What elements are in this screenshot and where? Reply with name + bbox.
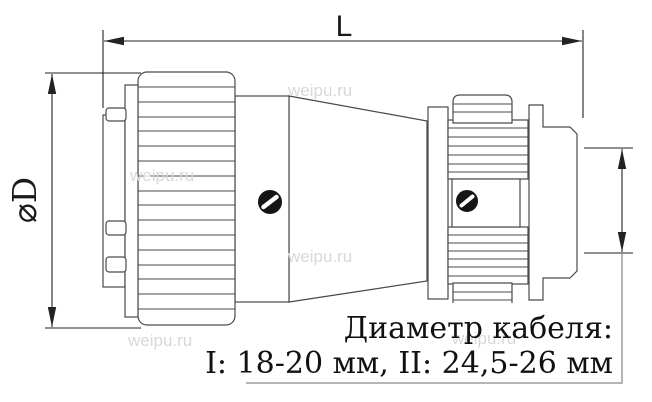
gland-flange-ring (428, 107, 448, 299)
note-line-1: Диаметр кабеля: (344, 311, 613, 346)
gland-nut-lower-ribs (448, 227, 528, 284)
watermark-text: weipu.ru (287, 81, 352, 100)
cable-exit-cap (529, 105, 577, 300)
technical-drawing-page: L ⌀D weipu.ru weipu.ru weipu.ru weipu.ru… (0, 0, 652, 402)
key-tab-lower (106, 257, 126, 272)
length-dimension-label: L (336, 10, 353, 43)
note-line-2: I: 18-20 мм, II: 24,5-26 мм (205, 346, 613, 381)
watermark-text: weipu.ru (127, 331, 192, 350)
dimension-cable-entry (584, 148, 633, 253)
mid-plate (125, 85, 138, 317)
taper-cone (289, 96, 427, 302)
diameter-dimension-label: ⌀D (5, 177, 44, 223)
body-screw-icon (259, 191, 282, 214)
connector-technical-drawing: L ⌀D weipu.ru weipu.ru weipu.ru weipu.ru… (0, 0, 652, 402)
watermark-text: weipu.ru (287, 247, 352, 266)
gland-nut-top-cap (453, 95, 512, 123)
key-tab-middle (106, 221, 126, 235)
connector-body (103, 72, 577, 325)
gland-nut-upper-ribs (448, 120, 528, 179)
coupling-nut (138, 72, 235, 325)
key-tab-top (106, 108, 126, 121)
watermark-text: weipu.ru (129, 166, 194, 185)
gland-screw-icon (457, 191, 478, 212)
